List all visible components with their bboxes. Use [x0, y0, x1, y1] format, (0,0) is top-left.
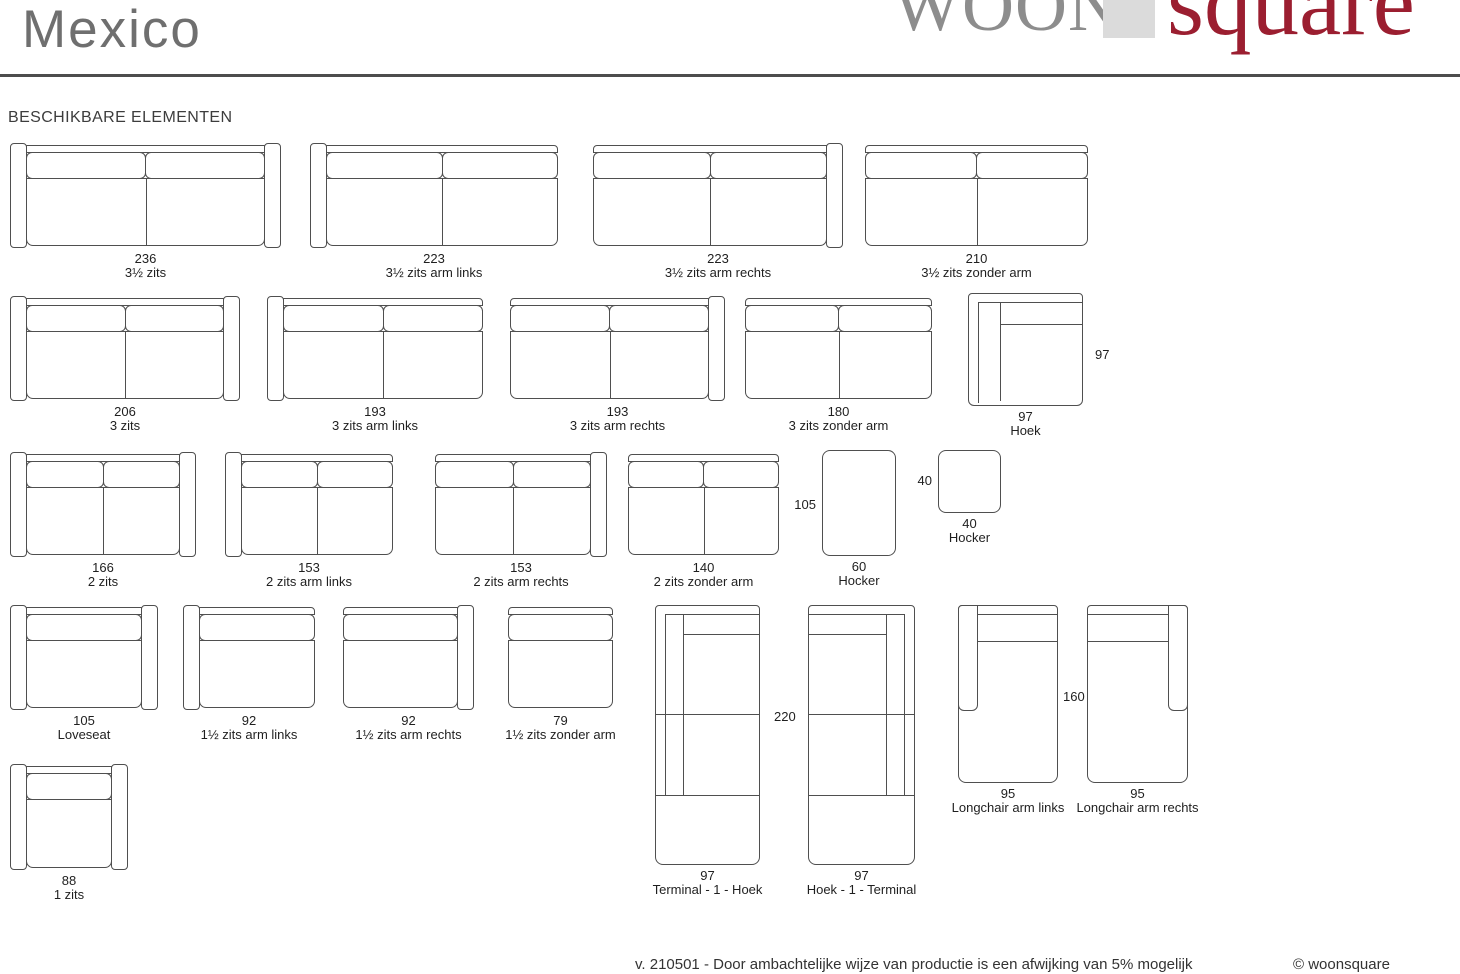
element-label-3-zits-arm-rechts: 1933 zits arm rechts	[508, 405, 728, 432]
element-3half-zits-arm-rechts	[593, 143, 843, 248]
seat-divider	[383, 332, 384, 398]
seat	[26, 640, 142, 708]
back-cushion	[26, 614, 142, 641]
sofa-body	[343, 607, 458, 708]
element-label-3half-zits: 2363½ zits	[36, 252, 256, 279]
element-label-3half-zits-arm-rechts: 2233½ zits arm rechts	[608, 252, 828, 279]
element-dim: 166	[0, 561, 213, 575]
sofa-body	[283, 298, 483, 399]
element-label-3half-zits-zonder-arm: 2103½ zits zonder arm	[867, 252, 1087, 279]
element-label-hocker-40: 40Hocker	[860, 517, 1080, 544]
dimension-105-hocker-60: 105	[758, 498, 816, 511]
element-name: Hoek - 1 - Terminal	[752, 883, 972, 897]
sofa-body	[745, 298, 932, 399]
back-cushion	[593, 152, 711, 179]
back-cushion	[283, 305, 384, 332]
back-rail-line	[904, 614, 905, 795]
back-cushion-top-line	[1000, 324, 1082, 325]
element-3-zits	[10, 296, 240, 401]
arm-left	[10, 605, 27, 710]
element-name: 3 zits arm links	[265, 419, 485, 433]
back-cushion-row	[283, 305, 483, 332]
arm-left	[225, 452, 242, 557]
sofa-body	[26, 454, 180, 555]
logo-woon-text: WOON	[893, 0, 1121, 42]
back-cushion	[435, 461, 514, 488]
seat	[26, 799, 112, 868]
seat	[283, 331, 483, 399]
back-cushion	[26, 152, 146, 179]
back-cushion-row	[326, 152, 558, 179]
element-label-2-zits-arm-links: 1532 zits arm links	[199, 561, 419, 588]
arm-left	[183, 605, 200, 710]
back-cushion	[609, 305, 709, 332]
back-cushion-row	[508, 614, 613, 641]
logo-square-text: square	[1167, 0, 1415, 50]
element-name: 3½ zits arm links	[324, 266, 544, 280]
arm-left	[310, 143, 327, 248]
seat-divider-1	[656, 714, 759, 715]
element-dim: 79	[451, 714, 671, 728]
element-label-longchair-arm-rechts: 95Longchair arm rechts	[1028, 787, 1248, 814]
element-2-zits-zonder-arm	[628, 452, 779, 557]
element-label-hocker-60: 60Hocker	[749, 560, 969, 587]
seat	[745, 331, 932, 399]
dimension-220-terminal-1-hoek: 220	[774, 710, 796, 723]
seat-divider	[125, 332, 126, 398]
element-2-zits-arm-links	[225, 452, 393, 557]
arm-right	[179, 452, 196, 557]
seat-divider	[839, 332, 840, 398]
element-1half-zits-arm-rechts	[343, 605, 474, 710]
element-name: Hocker	[749, 574, 969, 588]
back-cushion-row	[628, 461, 779, 488]
element-name: Hocker	[860, 531, 1080, 545]
element-name: 3½ zits	[36, 266, 256, 280]
back-cushion	[510, 305, 610, 332]
arm-right	[264, 143, 281, 248]
element-dim: 210	[867, 252, 1087, 266]
element-dim: 223	[324, 252, 544, 266]
edge-cutoff-dimension-2: 5	[0, 652, 5, 667]
back-cushion	[241, 461, 318, 488]
edge-cutoff-dimension-0: 5	[0, 344, 5, 359]
arm-left	[10, 143, 27, 248]
back-cushion-row	[26, 152, 265, 179]
seat-divider-2	[656, 795, 759, 796]
back-cushion-row	[26, 461, 180, 488]
back-cushion	[199, 614, 315, 641]
back-cushion	[976, 152, 1088, 179]
arm-left	[267, 296, 284, 401]
seat	[26, 487, 180, 555]
seat	[199, 640, 315, 708]
back-cushion	[442, 152, 559, 179]
seat-divider-1	[809, 714, 914, 715]
element-label-3-zits: 2063 zits	[15, 405, 235, 432]
element-3-zits-arm-rechts	[510, 296, 725, 401]
element-dim: 223	[608, 252, 828, 266]
back-cushion	[317, 461, 394, 488]
back-cushion	[508, 614, 613, 641]
sofa-body	[26, 145, 265, 246]
back-cushion	[343, 614, 458, 641]
element-name: Hoek	[916, 424, 1136, 438]
seat-divider	[146, 179, 147, 245]
element-3-zits-arm-links	[267, 296, 483, 401]
back-cushion-line	[1088, 641, 1168, 642]
element-label-hoek-1-terminal: 97Hoek - 1 - Terminal	[752, 869, 972, 896]
back-cushion	[125, 305, 225, 332]
sofa-body	[865, 145, 1088, 246]
element-dim: 88	[0, 874, 179, 888]
element-name: 3½ zits arm rechts	[608, 266, 828, 280]
element-dim: 40	[860, 517, 1080, 531]
seat-divider	[103, 488, 104, 554]
seat-divider	[442, 179, 443, 245]
element-name: 2 zits	[0, 575, 213, 589]
back-cushion-line	[683, 614, 684, 795]
back-cushion-line	[978, 641, 1057, 642]
element-label-1half-zits-zonder-arm: 791½ zits zonder arm	[451, 714, 671, 741]
element-dim: 95	[1028, 787, 1248, 801]
sofa-body	[26, 766, 112, 868]
element-3half-zits	[10, 143, 281, 248]
back-cushion-row	[745, 305, 932, 332]
back-cushion-row	[343, 614, 458, 641]
element-1-zits	[10, 764, 128, 870]
element-dim: 153	[199, 561, 419, 575]
back-cushion-row	[26, 305, 224, 332]
element-name: 1 zits	[0, 888, 179, 902]
element-name: 3 zits arm rechts	[508, 419, 728, 433]
element-loveseat	[10, 605, 158, 710]
element-dim: 97	[752, 869, 972, 883]
arm-right	[457, 605, 474, 710]
element-hoek	[968, 293, 1083, 406]
back-cushion	[383, 305, 484, 332]
back-cushion-line	[886, 614, 887, 795]
element-3half-zits-arm-links	[310, 143, 558, 248]
seat	[26, 331, 224, 399]
element-name: 2 zits arm links	[199, 575, 419, 589]
back-cushion	[26, 773, 112, 800]
seat	[326, 178, 558, 246]
header-divider	[0, 74, 1460, 77]
sofa-body	[199, 607, 315, 708]
logo-square-block	[1103, 0, 1155, 38]
dimension-160-longchair-arm-links: 160	[1063, 690, 1085, 703]
back-cushion	[703, 461, 779, 488]
element-2-zits	[10, 452, 196, 557]
seat	[508, 640, 613, 708]
arm-left	[10, 764, 27, 870]
sofa-body	[435, 454, 591, 555]
backrest-rail-line	[978, 614, 1057, 615]
top-cushion-line	[809, 634, 887, 635]
back-cushion	[710, 152, 828, 179]
back-rail-line	[665, 614, 666, 795]
seat	[26, 178, 265, 246]
back-cushion	[103, 461, 181, 488]
element-1half-zits-zonder-arm	[508, 605, 613, 710]
element-3half-zits-zonder-arm	[865, 143, 1088, 248]
element-label-2-zits: 1662 zits	[0, 561, 213, 588]
seat	[865, 178, 1088, 246]
seat-divider	[513, 488, 514, 554]
sofa-body	[241, 454, 393, 555]
seat-divider	[610, 332, 611, 398]
arm-left	[958, 605, 978, 711]
element-dim: 60	[749, 560, 969, 574]
element-2-zits-arm-rechts	[435, 452, 607, 557]
dimension-40-hocker-40: 40	[874, 474, 932, 487]
arm-right	[826, 143, 843, 248]
arm-right	[708, 296, 725, 401]
element-hoek-1-terminal	[808, 605, 915, 865]
element-longchair-arm-rechts	[1087, 605, 1188, 783]
back-cushion	[326, 152, 443, 179]
back-cushion	[865, 152, 977, 179]
backrest-rail-line	[665, 614, 759, 615]
back-cushion	[145, 152, 265, 179]
top-cushion-line	[683, 634, 759, 635]
element-name: Longchair arm rechts	[1028, 801, 1248, 815]
arm-right	[111, 764, 128, 870]
arm-right	[223, 296, 240, 401]
element-hocker-40	[938, 450, 1001, 513]
back-cushion	[26, 461, 104, 488]
arm-left	[10, 296, 27, 401]
sofa-body	[26, 607, 142, 708]
element-name: 3½ zits zonder arm	[867, 266, 1087, 280]
arm-right	[590, 452, 607, 557]
back-cushion-row	[865, 152, 1088, 179]
back-cushion-row	[26, 614, 142, 641]
seat-divider	[710, 179, 711, 245]
arm-right	[141, 605, 158, 710]
seat-divider	[704, 488, 705, 554]
back-rail-left-line	[978, 302, 979, 403]
back-cushion-row	[199, 614, 315, 641]
seat	[628, 487, 779, 555]
element-terminal-1-hoek	[655, 605, 760, 865]
sofa-body	[593, 145, 827, 246]
dimension-97-hoek: 97	[1095, 348, 1109, 361]
edge-cutoff-dimension-1: 5	[0, 499, 5, 514]
element-label-3half-zits-arm-links: 2233½ zits arm links	[324, 252, 544, 279]
element-3-zits-zonder-arm	[745, 296, 932, 401]
element-1half-zits-arm-links	[183, 605, 315, 710]
back-cushion	[513, 461, 592, 488]
backrest-rail-line	[809, 614, 905, 615]
seat	[593, 178, 827, 246]
back-cushion-row	[26, 773, 112, 800]
back-cushion-row	[593, 152, 827, 179]
backrest-rail-line	[978, 302, 1082, 303]
sofa-body	[510, 298, 709, 399]
element-dim: 193	[265, 405, 485, 419]
back-cushion-row	[510, 305, 709, 332]
element-longchair-arm-links	[958, 605, 1058, 783]
element-label-3-zits-arm-links: 1933 zits arm links	[265, 405, 485, 432]
edge-cutoff-dimension-3: 8	[0, 812, 5, 827]
element-label-hoek: 97Hoek	[916, 410, 1136, 437]
sofa-body	[508, 607, 613, 708]
sofa-body	[326, 145, 558, 246]
element-dim: 193	[508, 405, 728, 419]
element-dim: 236	[36, 252, 256, 266]
backrest-rail-line	[1088, 614, 1168, 615]
back-cushion	[745, 305, 839, 332]
seat-divider	[977, 179, 978, 245]
seat	[510, 331, 709, 399]
section-heading: BESCHIKBARE ELEMENTEN	[8, 109, 232, 127]
seat	[435, 487, 591, 555]
footer-copyright: © woonsquare	[1293, 956, 1390, 973]
catalog-page: Mexico WOON square BESCHIKBARE ELEMENTEN…	[0, 0, 1460, 974]
seat-divider	[317, 488, 318, 554]
back-cushion	[628, 461, 704, 488]
footer-version-note: v. 210501 - Door ambachtelijke wijze van…	[635, 956, 1193, 973]
element-dim: 206	[15, 405, 235, 419]
back-cushion-row	[241, 461, 393, 488]
sofa-body	[26, 298, 224, 399]
element-dim: 97	[916, 410, 1136, 424]
element-name: 3 zits	[15, 419, 235, 433]
back-cushion	[26, 305, 126, 332]
arm-left	[10, 452, 27, 557]
back-cushion-row	[435, 461, 591, 488]
back-cushion-left-line	[1000, 302, 1001, 401]
element-name: 1½ zits zonder arm	[451, 728, 671, 742]
page-title: Mexico	[22, 0, 202, 60]
seat	[241, 487, 393, 555]
arm-right	[1168, 605, 1188, 711]
sofa-body	[628, 454, 779, 555]
seat	[343, 640, 458, 708]
back-cushion	[838, 305, 932, 332]
element-label-1-zits: 881 zits	[0, 874, 179, 901]
